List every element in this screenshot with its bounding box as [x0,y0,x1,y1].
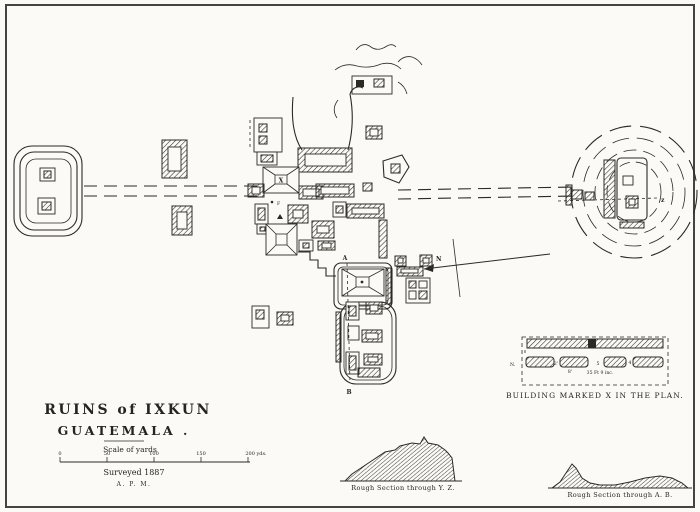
acropolis: A B [334,255,396,396]
point-z-label: z [661,197,665,204]
north-structure [334,45,422,118]
east-causeway [398,187,576,199]
stela-f: F [271,201,280,207]
scale-tick-200: 200 yds. [245,451,267,457]
south-buildings [252,306,293,328]
causeway-platform-south [172,206,192,235]
stela-f-label: F [277,201,280,207]
detail-sub-dim: 8' [568,369,572,375]
section-yz-caption: Rough Section through Y. Z. [351,484,454,492]
map-title: RUINS of IXKUN [44,402,212,418]
section-ab: Rough Section through A. B. [548,464,692,499]
map-sheet: X F [0,0,700,512]
causeway-platform-north [162,140,187,178]
scale-tick-50: 50 [104,451,110,457]
detail-north-label: N. [510,362,516,368]
scale-bar: 0 50 100 150 200 yds. [58,451,267,462]
stela-row [379,220,387,258]
map-subtitle: GUATEMALA . [58,423,191,438]
section-yz: Rough Section through Y. Z. [340,437,462,492]
section-ab-caption: Rough Section through A. B. [567,491,672,499]
north-arrow: N [424,239,550,297]
east-triangle-structure [383,155,409,183]
scale-tick-150: 150 [196,451,206,457]
east-buildings [395,255,432,303]
point-b-label: B [346,389,351,396]
detail-dimension: 35 Ft 9 inc. [587,370,614,376]
detail-gap2: 5 [597,361,600,367]
title-block: RUINS of IXKUN GUATEMALA . Scale of yard… [44,402,267,488]
west-enclosure [14,146,82,236]
north-label: N [436,256,442,263]
pyramid-south [266,224,297,255]
point-a-label: A [342,255,348,262]
detail-gap1: 2' [554,361,558,367]
northwest-complex [250,118,282,165]
scale-tick-100: 100 [149,451,159,457]
stepped-wall [298,252,336,276]
plan-canvas: X F [0,0,700,512]
west-causeway [84,186,260,196]
u-shaped-structure [292,87,363,172]
detail-caption: BUILDING MARKED X IN THE PLAN. [506,391,684,400]
east-mound: z [558,126,697,258]
detail-gap3: 4 [629,360,632,366]
building-x-label: X [279,178,284,185]
surveyor-initials: A. P. M. [116,481,152,488]
surveyed-label: Surveyed 1887 [104,468,165,477]
scale-tick-0: 0 [58,451,61,457]
building-x-detail: N. 2' 5 4 8' 35 Ft 9 inc. BUILDING MARKE… [506,337,684,400]
